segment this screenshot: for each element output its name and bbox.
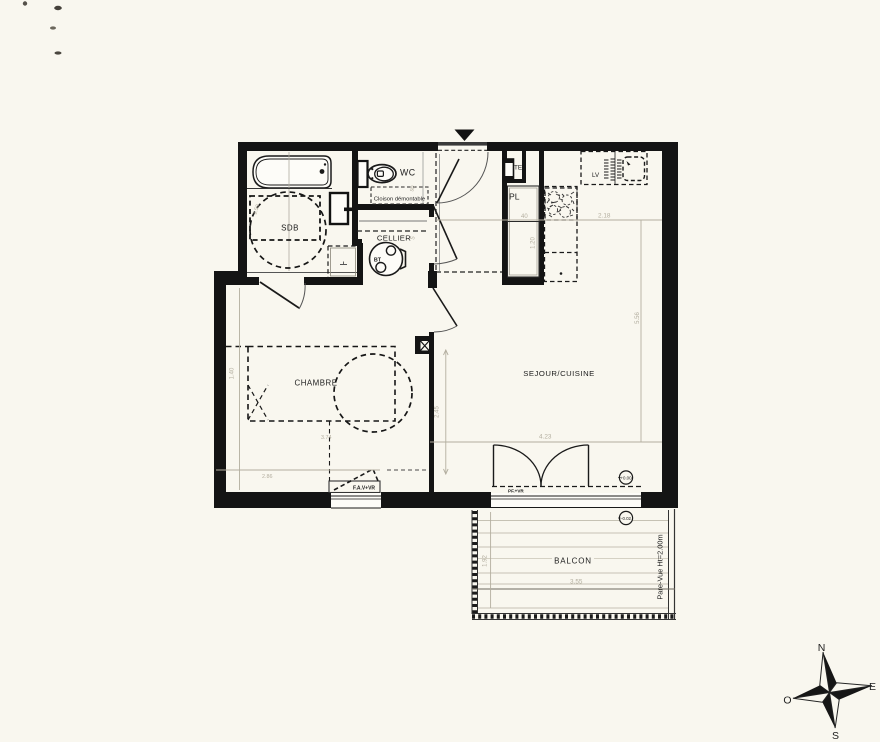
svg-text:N: N [818, 642, 826, 654]
svg-text:BT: BT [374, 258, 382, 264]
svg-text:3.74: 3.74 [321, 435, 332, 441]
svg-text:1.92: 1.92 [483, 555, 489, 567]
svg-text:SEJOUR/CUISINE: SEJOUR/CUISINE [523, 369, 595, 378]
svg-text:4.23: 4.23 [539, 434, 552, 441]
svg-text:CHAMBRE: CHAMBRE [295, 379, 338, 388]
svg-text:LV: LV [592, 172, 600, 179]
svg-text:Pare-Vue Ht=2.00m: Pare-Vue Ht=2.00m [656, 534, 665, 599]
svg-text:1.40: 1.40 [230, 367, 236, 379]
svg-text:TE: TE [514, 165, 522, 172]
svg-text:5.56: 5.56 [635, 312, 641, 324]
svg-text:2.18: 2.18 [598, 213, 611, 220]
svg-text:1.20: 1.20 [531, 237, 537, 249]
svg-text:2.45: 2.45 [435, 406, 441, 418]
svg-text:O: O [783, 695, 791, 707]
svg-text:E: E [869, 681, 876, 693]
svg-text:WC: WC [400, 168, 416, 178]
svg-text:CELLIER: CELLIER [377, 234, 411, 243]
svg-text:F.A.V+VR: F.A.V+VR [353, 486, 375, 492]
svg-text:Cloison démontable: Cloison démontable [374, 197, 425, 203]
svg-text:40: 40 [521, 214, 528, 220]
svg-text:PL: PL [509, 192, 520, 202]
svg-text:PF.+VR: PF.+VR [508, 489, 524, 494]
svg-text:S: S [832, 730, 839, 742]
svg-text:BALCON: BALCON [554, 557, 592, 566]
svg-text:+0.00: +0.00 [620, 476, 632, 481]
svg-text:-0.02: -0.02 [621, 516, 632, 521]
svg-text:3.55: 3.55 [570, 579, 583, 586]
svg-text:2.86: 2.86 [262, 474, 273, 480]
svg-text:SDB: SDB [281, 224, 299, 233]
